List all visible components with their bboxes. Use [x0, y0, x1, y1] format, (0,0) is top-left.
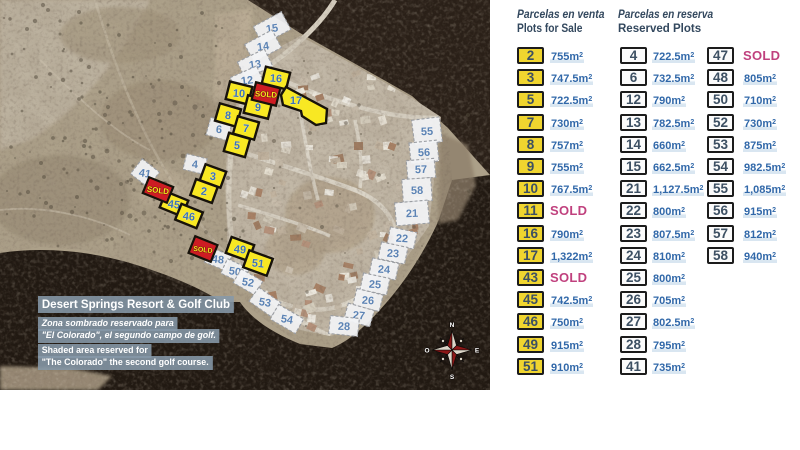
svg-text:53: 53 — [258, 296, 272, 310]
svg-text:7: 7 — [242, 123, 249, 135]
svg-text:N: N — [450, 322, 455, 329]
svg-text:17: 17 — [290, 95, 302, 107]
svg-text:56: 56 — [418, 147, 431, 159]
svg-text:8: 8 — [224, 110, 231, 122]
svg-text:46: 46 — [182, 210, 196, 223]
svg-text:O: O — [424, 348, 429, 355]
svg-text:E: E — [475, 348, 480, 355]
svg-text:5: 5 — [233, 140, 240, 152]
svg-text:16: 16 — [269, 73, 282, 86]
svg-text:58: 58 — [411, 185, 423, 197]
svg-text:S: S — [450, 374, 455, 381]
svg-text:26: 26 — [361, 295, 374, 308]
svg-text:25: 25 — [368, 279, 381, 292]
svg-text:52: 52 — [241, 276, 255, 290]
svg-text:24: 24 — [377, 264, 391, 277]
svg-text:3: 3 — [209, 171, 216, 184]
svg-text:49: 49 — [233, 243, 246, 256]
svg-text:51: 51 — [251, 257, 264, 270]
svg-text:SOLD: SOLD — [255, 89, 278, 100]
svg-text:9: 9 — [254, 102, 261, 114]
svg-text:6: 6 — [215, 124, 222, 136]
svg-text:2: 2 — [200, 186, 207, 199]
svg-text:57: 57 — [415, 164, 428, 176]
svg-text:28: 28 — [338, 321, 351, 333]
svg-text:21: 21 — [406, 208, 419, 220]
svg-text:23: 23 — [386, 248, 399, 261]
svg-text:22: 22 — [395, 233, 408, 246]
svg-text:10: 10 — [232, 88, 245, 101]
svg-text:55: 55 — [421, 126, 434, 138]
